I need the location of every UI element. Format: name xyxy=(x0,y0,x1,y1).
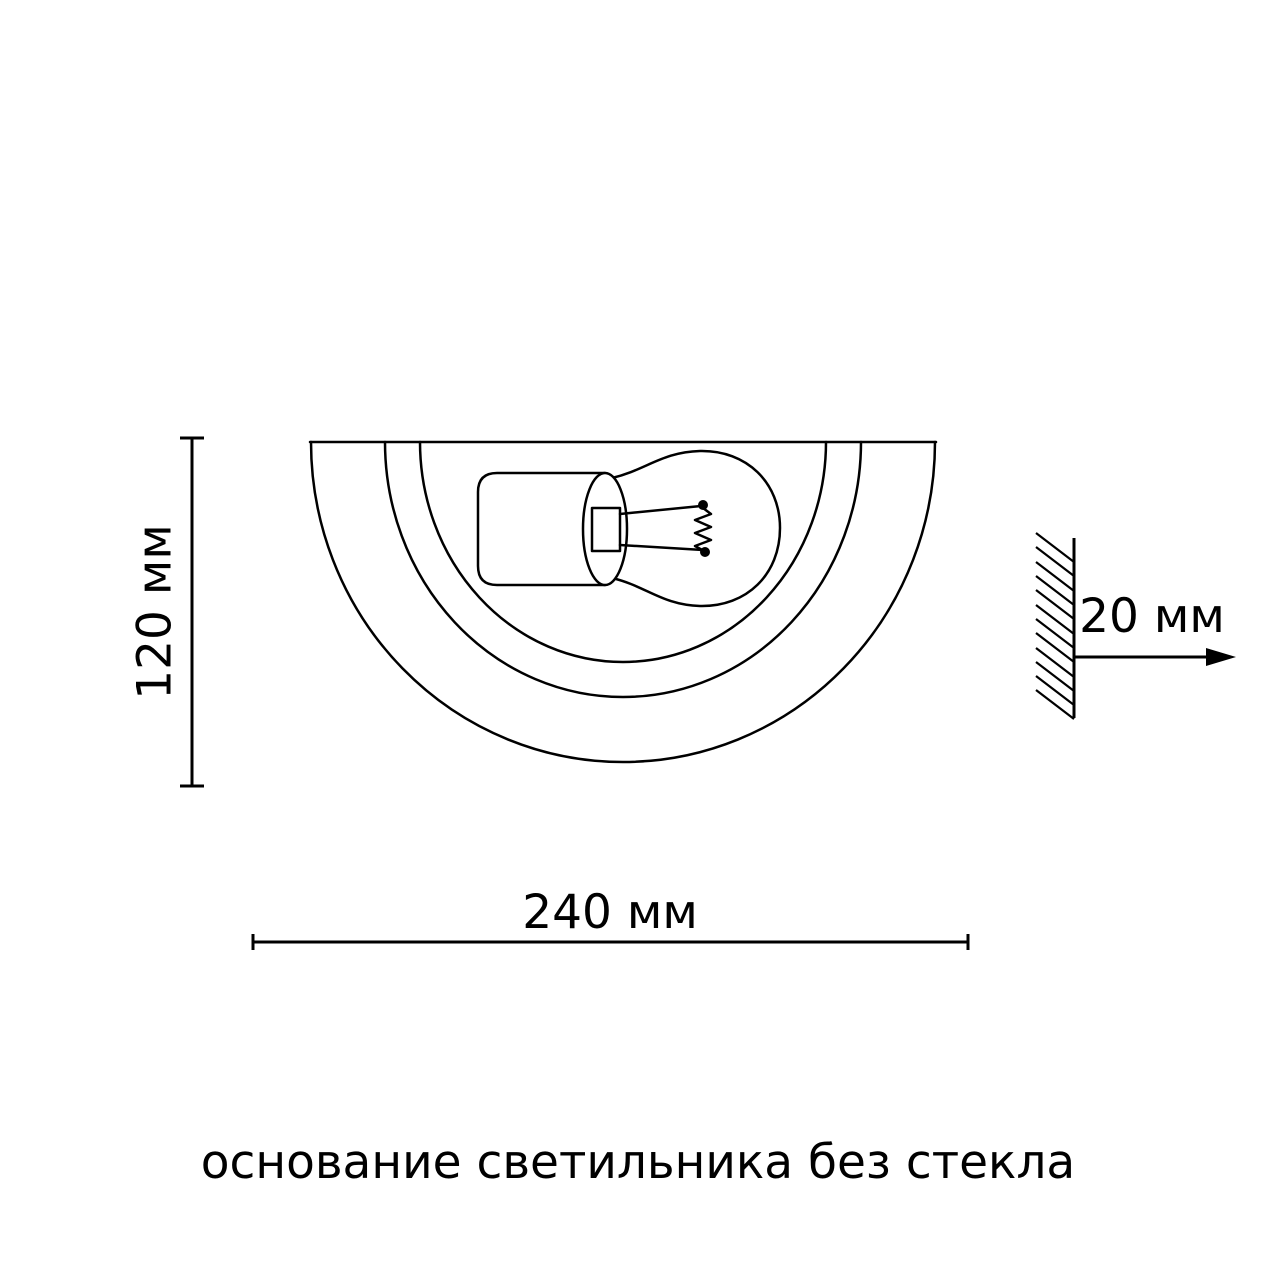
wall-offset-label: 20 мм xyxy=(1079,589,1225,644)
height-dimension: 120 мм xyxy=(128,438,205,786)
height-dimension-label: 120 мм xyxy=(128,524,183,700)
wall-hatching xyxy=(1036,533,1074,719)
width-dimension-label: 240 мм xyxy=(522,885,698,940)
width-dimension: 240 мм xyxy=(253,885,968,950)
lamp-base-drawing xyxy=(310,442,936,762)
diagram-canvas: 120 мм 240 мм 20 мм основание светильник… xyxy=(0,0,1280,1280)
filament-contact-upper xyxy=(698,500,708,510)
diagram-caption: основание светильника без стекла xyxy=(201,1135,1075,1190)
wall-offset-dimension: 20 мм xyxy=(1036,533,1236,719)
offset-arrow-head xyxy=(1206,648,1236,666)
lamp-dimension-diagram: 120 мм 240 мм 20 мм основание светильник… xyxy=(0,0,1280,1280)
filament-contact-lower xyxy=(700,547,710,557)
bulb-base-stub xyxy=(592,508,620,551)
light-bulb-glass xyxy=(612,451,780,606)
